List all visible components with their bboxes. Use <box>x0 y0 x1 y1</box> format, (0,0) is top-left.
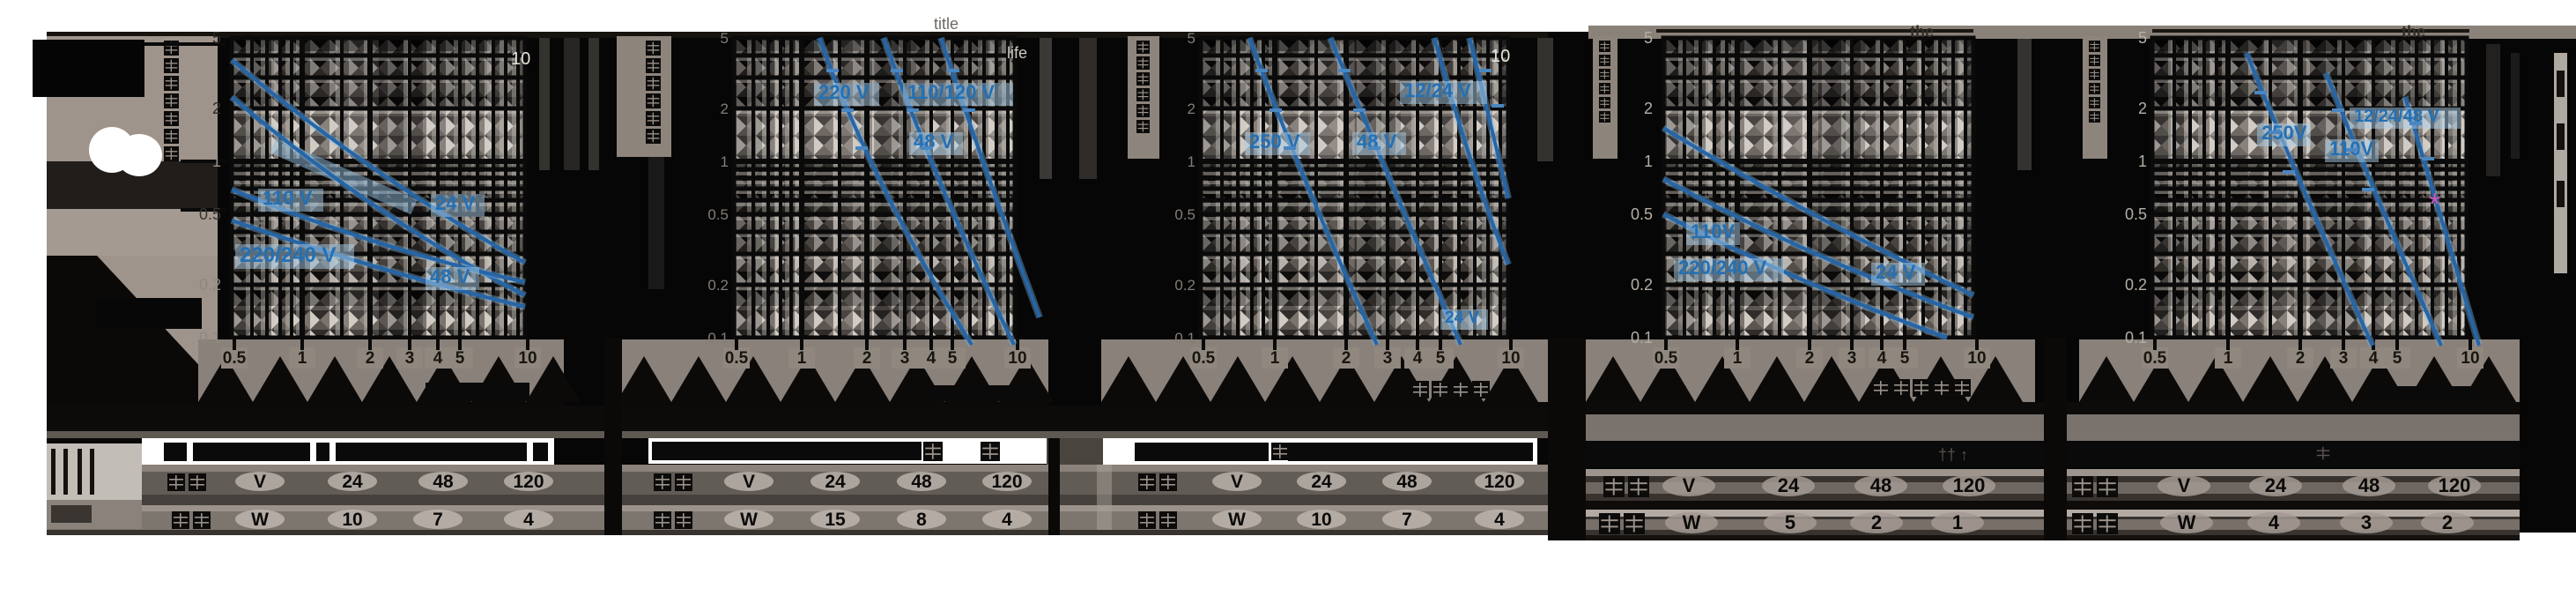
svg-text:0.5: 0.5 <box>707 206 729 223</box>
svg-text:5: 5 <box>455 349 465 368</box>
svg-text:10: 10 <box>1491 47 1510 66</box>
svg-text:4: 4 <box>1494 510 1505 530</box>
svg-text:220/240 V: 220/240 V <box>1678 257 1767 279</box>
svg-text:0.5: 0.5 <box>2125 205 2147 223</box>
svg-text:2: 2 <box>1805 349 1815 368</box>
svg-text:24 V: 24 V <box>1445 309 1479 327</box>
svg-text:2: 2 <box>1644 100 1653 117</box>
svg-text:48 V: 48 V <box>430 265 470 287</box>
svg-text:24: 24 <box>1311 472 1332 492</box>
svg-text:3: 3 <box>1383 349 1393 368</box>
svg-text:4: 4 <box>523 510 534 530</box>
svg-text:W: W <box>1683 511 1701 533</box>
svg-text:250V: 250V <box>2261 122 2307 144</box>
svg-text:48: 48 <box>1870 474 1891 496</box>
svg-text:3: 3 <box>405 349 415 368</box>
svg-text:3: 3 <box>2361 511 2372 533</box>
svg-text:2: 2 <box>2442 511 2453 533</box>
svg-text:5: 5 <box>212 29 221 47</box>
svg-text:2: 2 <box>1188 101 1195 117</box>
svg-text:1: 1 <box>212 153 221 170</box>
svg-text:4: 4 <box>1002 510 1012 530</box>
svg-text:10: 10 <box>1311 510 1331 530</box>
svg-text:0.5: 0.5 <box>1192 349 1216 368</box>
svg-text:3: 3 <box>2339 349 2349 368</box>
svg-text:24 V: 24 V <box>1876 261 1916 283</box>
svg-text:1: 1 <box>2224 349 2233 368</box>
svg-text:V: V <box>1683 474 1696 496</box>
svg-text:1: 1 <box>1733 349 1743 368</box>
svg-text:W: W <box>251 510 269 530</box>
svg-text:5: 5 <box>1436 349 1446 368</box>
svg-text:0.5: 0.5 <box>199 205 221 223</box>
svg-text:0.2: 0.2 <box>2125 276 2147 294</box>
svg-text:W: W <box>740 510 758 530</box>
svg-text:48: 48 <box>1396 472 1418 492</box>
svg-text:5: 5 <box>1785 511 1795 533</box>
svg-text:0.2: 0.2 <box>199 276 221 294</box>
svg-text:the: the <box>2402 23 2425 41</box>
svg-text:title: title <box>934 15 959 33</box>
svg-text:12/24 V: 12/24 V <box>1404 79 1471 101</box>
svg-text:0.5: 0.5 <box>1174 206 1195 223</box>
svg-text:0.5: 0.5 <box>1631 205 1653 223</box>
svg-text:4: 4 <box>2369 349 2379 368</box>
svg-text:10: 10 <box>518 349 537 368</box>
svg-text:110/120 V: 110/120 V <box>907 81 995 103</box>
svg-text:3: 3 <box>1847 349 1857 368</box>
svg-text:2: 2 <box>2296 349 2306 368</box>
svg-text:1: 1 <box>2138 153 2147 170</box>
svg-text:2: 2 <box>212 100 221 117</box>
svg-text:120: 120 <box>991 472 1022 492</box>
svg-text:the: the <box>1910 23 1934 41</box>
svg-text:48: 48 <box>911 472 932 492</box>
svg-text:1: 1 <box>1188 153 1195 170</box>
svg-text:10: 10 <box>342 510 362 530</box>
svg-text:5: 5 <box>1188 30 1195 47</box>
svg-text:12/24/48 V: 12/24/48 V <box>2354 107 2439 126</box>
svg-text:V: V <box>2178 474 2191 496</box>
svg-text:3: 3 <box>900 349 910 368</box>
svg-text:2: 2 <box>366 349 375 368</box>
svg-text:8: 8 <box>916 510 927 530</box>
svg-text:0.1: 0.1 <box>199 329 221 346</box>
svg-text:7: 7 <box>1402 510 1412 530</box>
svg-text:120: 120 <box>1953 474 1986 496</box>
svg-text:2: 2 <box>721 101 729 117</box>
svg-text:15: 15 <box>825 510 846 530</box>
svg-text:110V: 110V <box>1691 220 1735 242</box>
svg-text:220/240 V: 220/240 V <box>240 243 336 267</box>
svg-text:5: 5 <box>2393 349 2402 368</box>
svg-text:V: V <box>1231 472 1243 492</box>
svg-text:120: 120 <box>1484 472 1514 492</box>
svg-text:0.5: 0.5 <box>223 349 247 368</box>
svg-text:1: 1 <box>298 349 307 368</box>
svg-text:10: 10 <box>2461 349 2479 368</box>
svg-text:120: 120 <box>2439 474 2471 496</box>
svg-text:24: 24 <box>2265 474 2287 496</box>
svg-text:5: 5 <box>1900 349 1910 368</box>
svg-text:24: 24 <box>825 472 846 492</box>
svg-text:4: 4 <box>927 349 936 368</box>
svg-text:4: 4 <box>433 349 443 368</box>
svg-text:V: V <box>743 472 755 492</box>
svg-text:2: 2 <box>2138 100 2147 117</box>
svg-text:0.1: 0.1 <box>707 330 729 346</box>
svg-text:0.1: 0.1 <box>1174 330 1195 346</box>
svg-text:220 V: 220 V <box>818 81 870 103</box>
svg-text:0.2: 0.2 <box>1631 276 1653 294</box>
svg-text:120: 120 <box>513 472 544 492</box>
svg-text:24: 24 <box>342 472 363 492</box>
svg-text:1: 1 <box>797 349 807 368</box>
svg-text:0.2: 0.2 <box>1174 277 1195 294</box>
svg-text:W: W <box>1228 510 1246 530</box>
svg-text:W: W <box>2178 511 2196 533</box>
svg-text:10: 10 <box>511 49 530 69</box>
svg-text:5: 5 <box>721 30 729 47</box>
svg-text:0.1: 0.1 <box>2125 329 2147 346</box>
svg-text:10: 10 <box>1501 349 1520 368</box>
svg-text:1: 1 <box>1270 349 1280 368</box>
svg-text:5: 5 <box>2138 29 2147 47</box>
svg-text:V: V <box>254 472 266 492</box>
svg-text:0.2: 0.2 <box>707 277 729 294</box>
svg-text:5: 5 <box>948 349 958 368</box>
svg-text:4: 4 <box>1877 349 1887 368</box>
svg-text:48: 48 <box>2358 474 2380 496</box>
svg-text:2: 2 <box>1871 511 1882 533</box>
svg-text:24 V: 24 V <box>435 192 476 214</box>
svg-text:10: 10 <box>1967 349 1986 368</box>
svg-text:48 V: 48 V <box>914 130 954 153</box>
svg-text:0.1: 0.1 <box>1631 329 1653 346</box>
svg-text:4: 4 <box>2269 511 2280 533</box>
svg-text:110 V: 110 V <box>263 187 313 209</box>
svg-text:4: 4 <box>1413 349 1423 368</box>
svg-text:2: 2 <box>1342 349 1351 368</box>
svg-text:5: 5 <box>1644 29 1653 47</box>
svg-text:48: 48 <box>433 472 454 492</box>
svg-text:7: 7 <box>433 510 443 530</box>
svg-text:1: 1 <box>721 153 729 170</box>
svg-text:0.5: 0.5 <box>725 349 749 368</box>
svg-text:1: 1 <box>1644 153 1653 170</box>
svg-text:†† ↑: †† ↑ <box>1938 446 1968 464</box>
svg-text:10: 10 <box>1008 349 1026 368</box>
svg-text:24: 24 <box>1778 474 1800 496</box>
svg-text:life: life <box>1007 44 1027 62</box>
svg-text:0.5: 0.5 <box>1654 349 1678 368</box>
svg-text:*: * <box>2429 188 2440 221</box>
svg-text:0.5: 0.5 <box>2143 349 2167 368</box>
svg-text:1: 1 <box>1952 511 1963 533</box>
svg-text:2: 2 <box>862 349 872 368</box>
